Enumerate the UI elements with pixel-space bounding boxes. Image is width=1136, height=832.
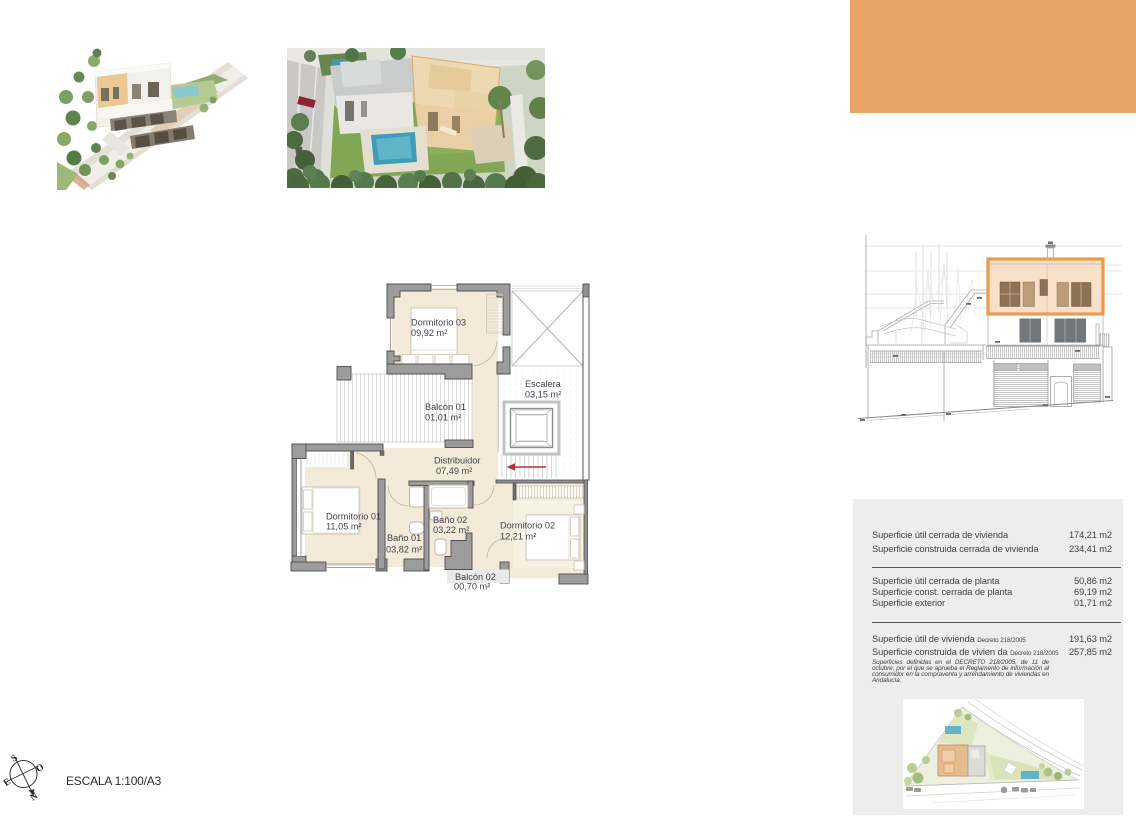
svg-text:03,22 m²: 03,22 m² xyxy=(433,525,469,535)
svg-text:Distribuidor: Distribuidor xyxy=(434,456,480,466)
svg-text:N: N xyxy=(29,791,40,803)
svg-text:03,82 m²: 03,82 m² xyxy=(386,545,422,555)
svg-text:09,92 m²: 09,92 m² xyxy=(411,328,447,338)
svg-text:O: O xyxy=(34,762,46,774)
svg-text:Balcón 01: Balcón 01 xyxy=(425,402,466,412)
svg-text:Dormitorio 01: Dormitorio 01 xyxy=(326,512,381,522)
svg-text:Baño 01: Baño 01 xyxy=(387,533,421,543)
svg-text:Dormitorio 02: Dormitorio 02 xyxy=(500,521,555,531)
svg-text:03,15 m²: 03,15 m² xyxy=(525,390,561,400)
svg-text:Dormitorio 03: Dormitorio 03 xyxy=(411,318,466,328)
svg-text:00,70 m²: 00,70 m² xyxy=(454,582,490,592)
svg-text:07,49 m²: 07,49 m² xyxy=(436,466,472,476)
svg-text:01,01 m²: 01,01 m² xyxy=(425,413,461,423)
svg-text:Baño 02: Baño 02 xyxy=(433,515,467,525)
svg-text:Balcón 02: Balcón 02 xyxy=(455,572,496,582)
svg-text:S: S xyxy=(10,753,20,764)
svg-text:Escalera: Escalera xyxy=(525,379,562,389)
svg-text:12,21 m²: 12,21 m² xyxy=(500,532,536,542)
svg-text:11,05 m²: 11,05 m² xyxy=(326,522,362,532)
